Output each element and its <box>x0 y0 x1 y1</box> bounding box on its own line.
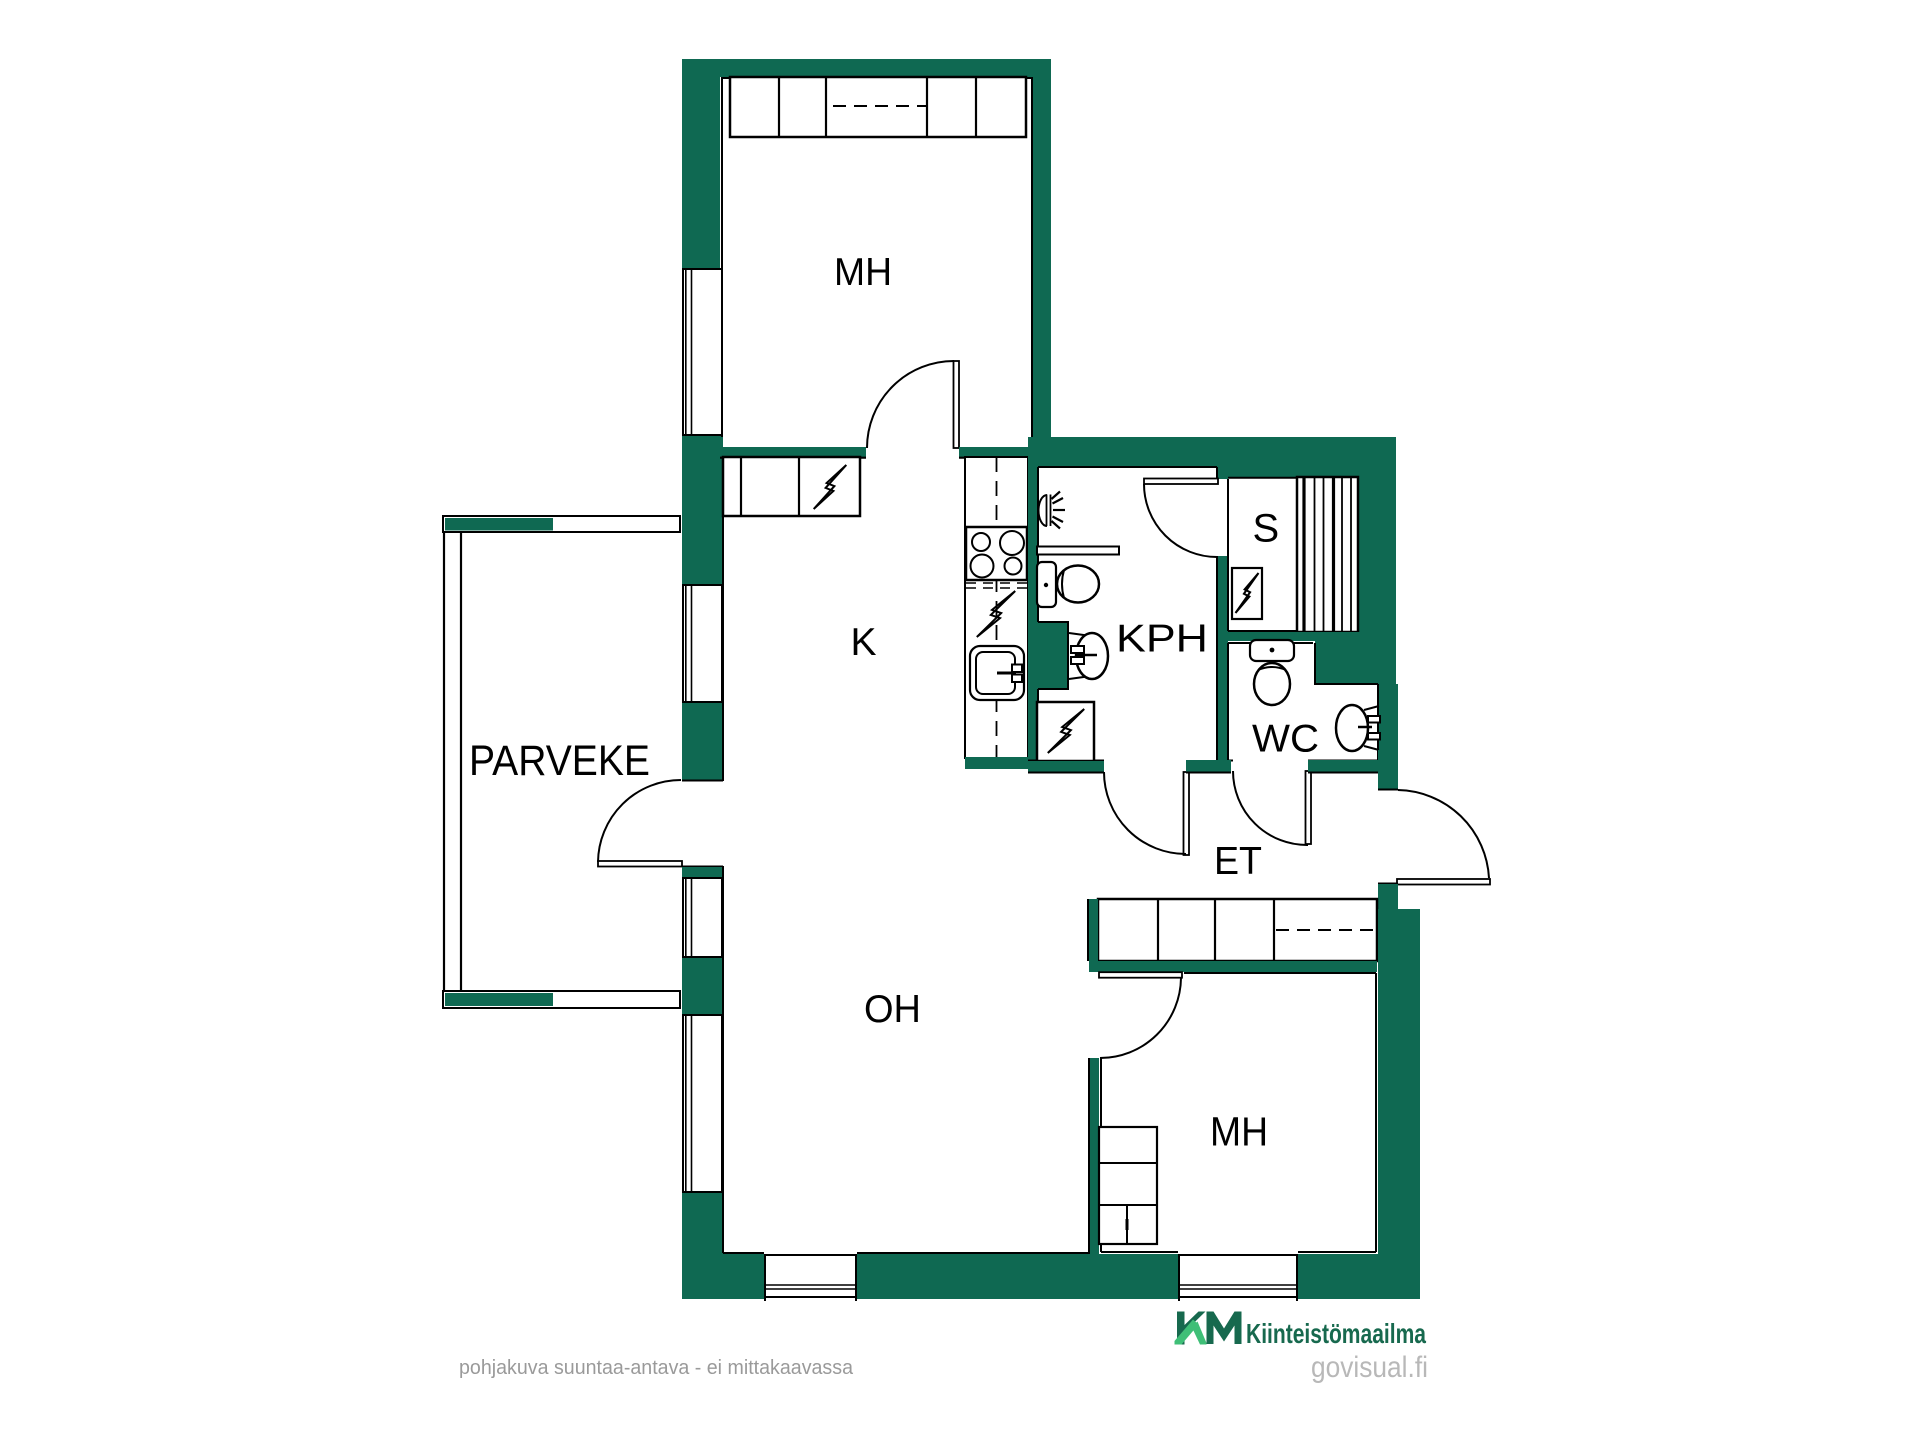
svg-text:MH: MH <box>834 251 892 294</box>
svg-text:Kiinteistömaailma: Kiinteistömaailma <box>1246 1318 1426 1349</box>
svg-text:ET: ET <box>1214 840 1262 883</box>
svg-text:S: S <box>1253 507 1280 551</box>
svg-text:K: K <box>851 621 877 664</box>
svg-text:KPH: KPH <box>1116 618 1208 661</box>
svg-text:pohjakuva suuntaa-antava - ei: pohjakuva suuntaa-antava - ei mittakaava… <box>459 1357 854 1379</box>
svg-text:WC: WC <box>1252 718 1319 761</box>
svg-text:MH: MH <box>1210 1109 1268 1155</box>
svg-text:OH: OH <box>864 988 921 1031</box>
svg-text:govisual.fi: govisual.fi <box>1311 1351 1428 1384</box>
svg-text:PARVEKE: PARVEKE <box>469 737 650 785</box>
